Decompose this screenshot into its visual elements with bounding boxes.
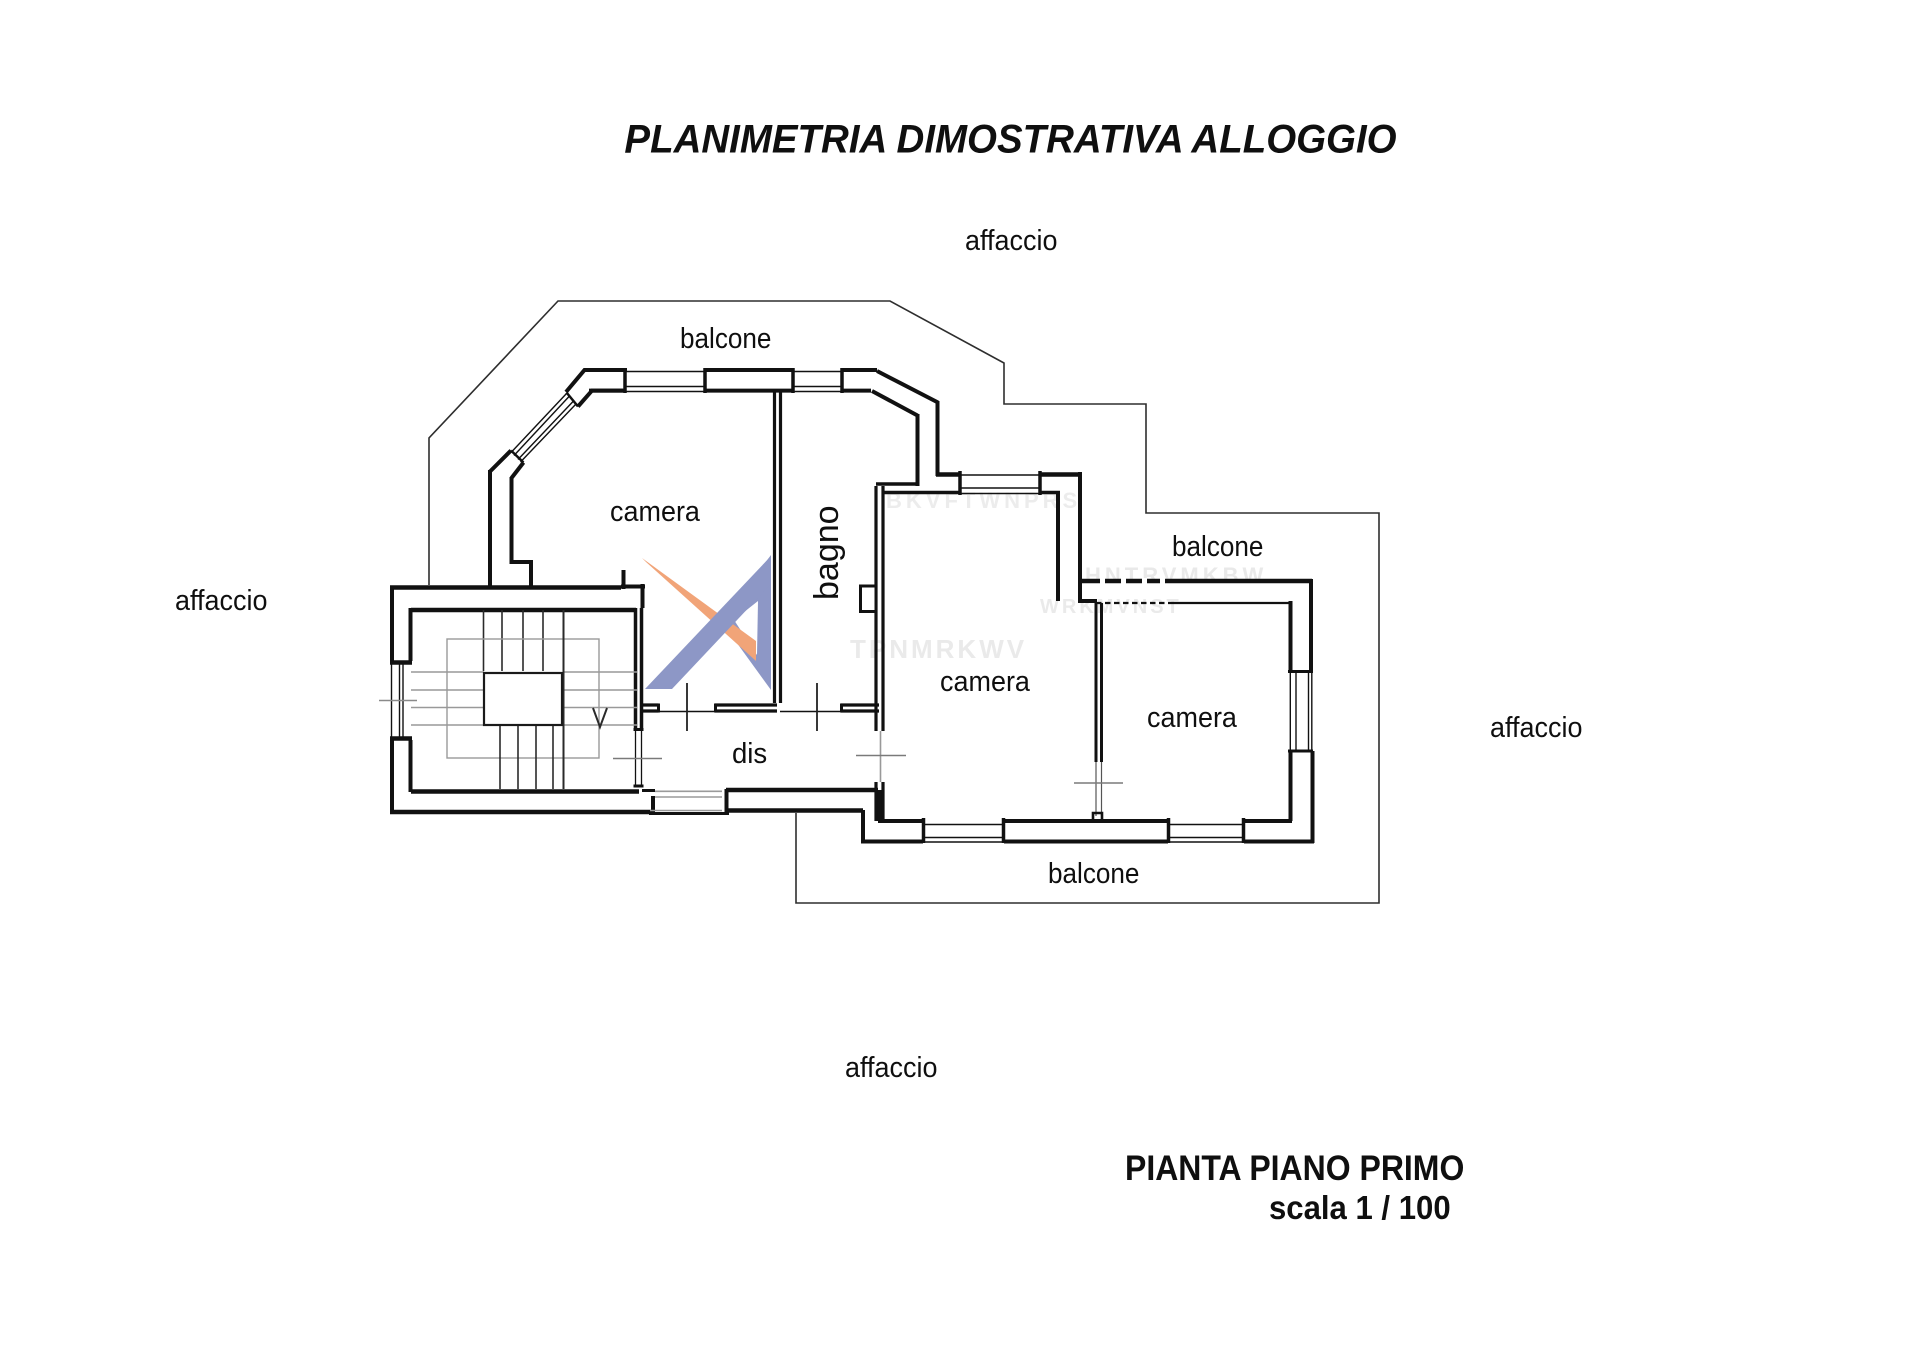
svg-text:camera: camera (610, 495, 700, 527)
svg-text:affaccio: affaccio (965, 224, 1057, 256)
svg-text:scala 1 / 100: scala 1 / 100 (1269, 1189, 1451, 1226)
svg-text:WRKMVNST: WRKMVNST (1040, 596, 1182, 618)
svg-text:camera: camera (1147, 701, 1237, 733)
svg-text:balcone: balcone (680, 322, 771, 355)
svg-text:PIANTA PIANO PRIMO: PIANTA PIANO PRIMO (1125, 1150, 1464, 1189)
svg-text:affaccio: affaccio (1490, 711, 1582, 743)
svg-text:bagno: bagno (808, 505, 846, 600)
svg-text:camera: camera (940, 665, 1030, 697)
svg-text:balcone: balcone (1048, 857, 1139, 890)
svg-text:balcone: balcone (1172, 530, 1263, 563)
svg-text:PLANIMETRIA DIMOSTRATIVA ALLOG: PLANIMETRIA DIMOSTRATIVA ALLOGGIO (624, 117, 1396, 162)
svg-text:HNTRVMKBW: HNTRVMKBW (1085, 563, 1267, 588)
svg-text:dis: dis (732, 736, 767, 769)
svg-text:affaccio: affaccio (175, 584, 267, 616)
svg-text:affaccio: affaccio (845, 1051, 937, 1083)
